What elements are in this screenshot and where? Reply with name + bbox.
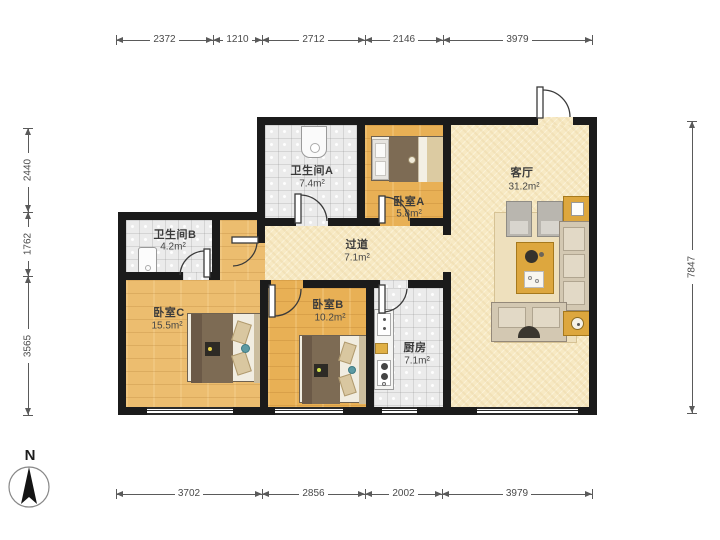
bedroom-a-door-leaf (379, 196, 385, 223)
dim-top-3979: 3979 (443, 34, 592, 46)
room-name-bathroom-a: 卫生间A (291, 162, 334, 178)
kitchen-door-swing-icon (385, 289, 407, 312)
kitchen-door-leaf (379, 285, 385, 313)
dim-right-7847: 7847 (686, 121, 698, 413)
room-name-bathroom-b: 卫生间B (154, 226, 197, 242)
room-area-kitchen: 7.1m² (404, 356, 430, 367)
dim-bottom-2002: 2002 (365, 488, 442, 500)
entrance-door-leaf (537, 87, 543, 118)
dim-bottom-3979: 3979 (442, 488, 592, 500)
bathroom-b-door-swing-icon (180, 251, 204, 275)
room-area-bedroom-c: 15.5m² (151, 321, 182, 332)
room-area-living: 31.2m² (508, 182, 539, 193)
dim-left-1762: 1762 (22, 212, 34, 276)
dim-bottom-3702: 3702 (116, 488, 262, 500)
compass-needle-icon (8, 464, 52, 510)
dim-top-1210: 1210 (213, 34, 262, 46)
dim-top-2146: 2146 (365, 34, 443, 46)
room-name-living: 客厅 (511, 164, 534, 180)
dim-left-3565: 3565 (22, 276, 34, 415)
north-label: N (8, 448, 52, 464)
bathroom-a-door-swing-icon (301, 195, 327, 221)
dim-bottom-2856: 2856 (262, 488, 365, 500)
room-name-bedroom-a: 卧室A (393, 193, 424, 209)
room-area-bedroom-a: 5.8m² (396, 209, 422, 220)
dim-top-2372: 2372 (116, 34, 213, 46)
floor-plan: 卫生间A 7.4m² 卧室A 5.8m² 客厅 31.2m² 过道 7.1m² … (0, 0, 720, 540)
north-compass-icon: N (8, 448, 52, 515)
dim-left-2440: 2440 (22, 128, 34, 212)
entrance-door-swing-icon (543, 90, 570, 117)
bathroom-b-door-leaf (204, 249, 210, 277)
bedroom-b-door-leaf (269, 285, 275, 317)
door-symbols (0, 0, 720, 540)
dim-top-2712: 2712 (262, 34, 365, 46)
room-area-bathroom-a: 7.4m² (299, 179, 325, 190)
room-area-bathroom-b: 4.2m² (160, 242, 186, 253)
room-name-kitchen: 厨房 (404, 339, 427, 355)
room-area-bedroom-b: 10.2m² (314, 313, 345, 324)
room-name-bedroom-b: 卧室B (312, 296, 343, 312)
bedroom-b-door-swing-icon (275, 289, 301, 316)
bathroom-a-door-leaf (295, 194, 301, 223)
bedroom-c-door-swing-icon (233, 243, 257, 266)
bedroom-c-door-leaf (232, 237, 258, 243)
room-name-hallway: 过道 (346, 236, 369, 252)
room-name-bedroom-c: 卧室C (153, 304, 184, 320)
room-area-hallway: 7.1m² (344, 253, 370, 264)
